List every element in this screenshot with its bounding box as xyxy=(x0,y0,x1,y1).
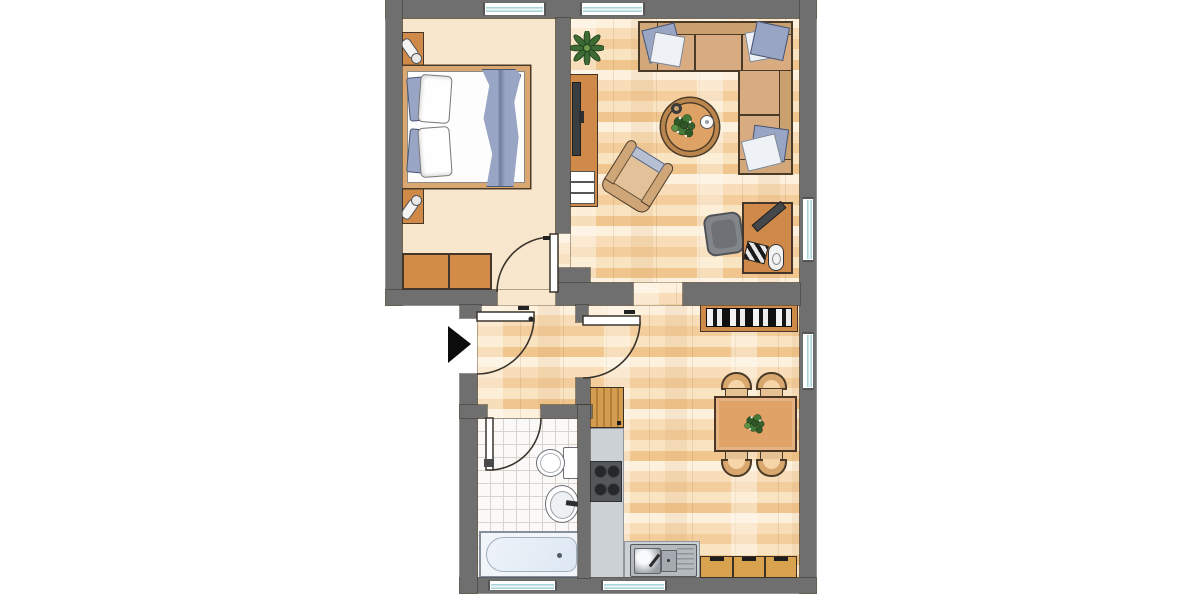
drain-icon xyxy=(557,553,562,558)
passage-floor xyxy=(633,283,683,305)
media-box xyxy=(570,171,595,182)
tub-basin xyxy=(486,537,577,572)
nightstand xyxy=(402,188,424,224)
burner-icon xyxy=(607,483,620,496)
double-bed xyxy=(402,66,530,188)
window-living-east xyxy=(802,197,814,262)
desk-lamp-base xyxy=(768,244,784,271)
flower-arrangement xyxy=(666,108,702,144)
window-dining-east xyxy=(802,332,814,390)
dresser xyxy=(402,253,492,290)
sink-basin xyxy=(634,548,661,574)
sink-basin-small xyxy=(661,550,677,572)
wall-bedroom-living xyxy=(556,18,570,233)
wall-entry-corner xyxy=(460,305,481,318)
sofa-cushion-seam xyxy=(741,34,743,70)
burner-icon xyxy=(594,465,607,478)
pillow xyxy=(417,126,452,178)
kitchen-cabinet-tall xyxy=(588,387,624,428)
lamp-base xyxy=(411,53,422,64)
tv-stand xyxy=(579,111,584,123)
bedroom-door-threshold xyxy=(497,290,556,305)
window-bathroom xyxy=(488,580,557,591)
base-cabinets xyxy=(700,556,797,578)
wall-bath-kitchen xyxy=(578,405,590,578)
floor-plan xyxy=(0,0,1200,600)
cabinet-handle xyxy=(742,557,756,561)
cabinet-handle xyxy=(710,557,724,561)
lamp-base xyxy=(411,195,422,206)
wall-hall-living xyxy=(556,283,633,305)
bathtub xyxy=(479,531,582,578)
wall-living-dining xyxy=(683,283,800,305)
window-bedroom xyxy=(483,2,546,16)
teacup-icon xyxy=(700,115,714,129)
bookshelf xyxy=(700,303,798,332)
wall-left-upper xyxy=(386,0,402,305)
wall-bath-top-left xyxy=(460,405,487,418)
cabinet-handle xyxy=(774,557,788,561)
drainboard xyxy=(677,548,694,572)
duvet xyxy=(473,69,521,187)
sofa-pillow-white xyxy=(650,32,686,68)
office-chair xyxy=(702,211,745,258)
wall-bedroom-bottom xyxy=(386,290,497,305)
burner-icon xyxy=(607,465,620,478)
media-box xyxy=(570,182,595,193)
dresser-divider xyxy=(448,255,450,288)
wash-basin xyxy=(545,485,579,523)
sofa-cushion-seam xyxy=(740,114,780,116)
wall-right xyxy=(800,0,816,593)
entrance-arrow-icon xyxy=(448,326,471,363)
kitchen-sink xyxy=(630,544,697,577)
table-plant xyxy=(740,409,770,439)
window-kitchen xyxy=(601,580,667,591)
stove xyxy=(590,461,622,502)
sofa-pillow-blue xyxy=(750,21,790,61)
potted-plant xyxy=(570,31,604,65)
wall-stub-door xyxy=(576,305,588,322)
toilet-bowl xyxy=(536,449,565,477)
media-box xyxy=(570,193,595,204)
tv-sideboard xyxy=(568,74,598,207)
sofa-cushion-seam xyxy=(694,34,696,70)
toilet-tank xyxy=(563,447,579,479)
dining-chair xyxy=(721,448,752,478)
pillow xyxy=(417,74,452,124)
nightstand xyxy=(402,32,424,68)
wall-stub-kitchen xyxy=(576,378,590,405)
dining-chair xyxy=(756,448,787,478)
window-living xyxy=(580,2,645,16)
burner-icon xyxy=(594,483,607,496)
kitchen-counter xyxy=(588,428,624,578)
books xyxy=(706,308,792,327)
